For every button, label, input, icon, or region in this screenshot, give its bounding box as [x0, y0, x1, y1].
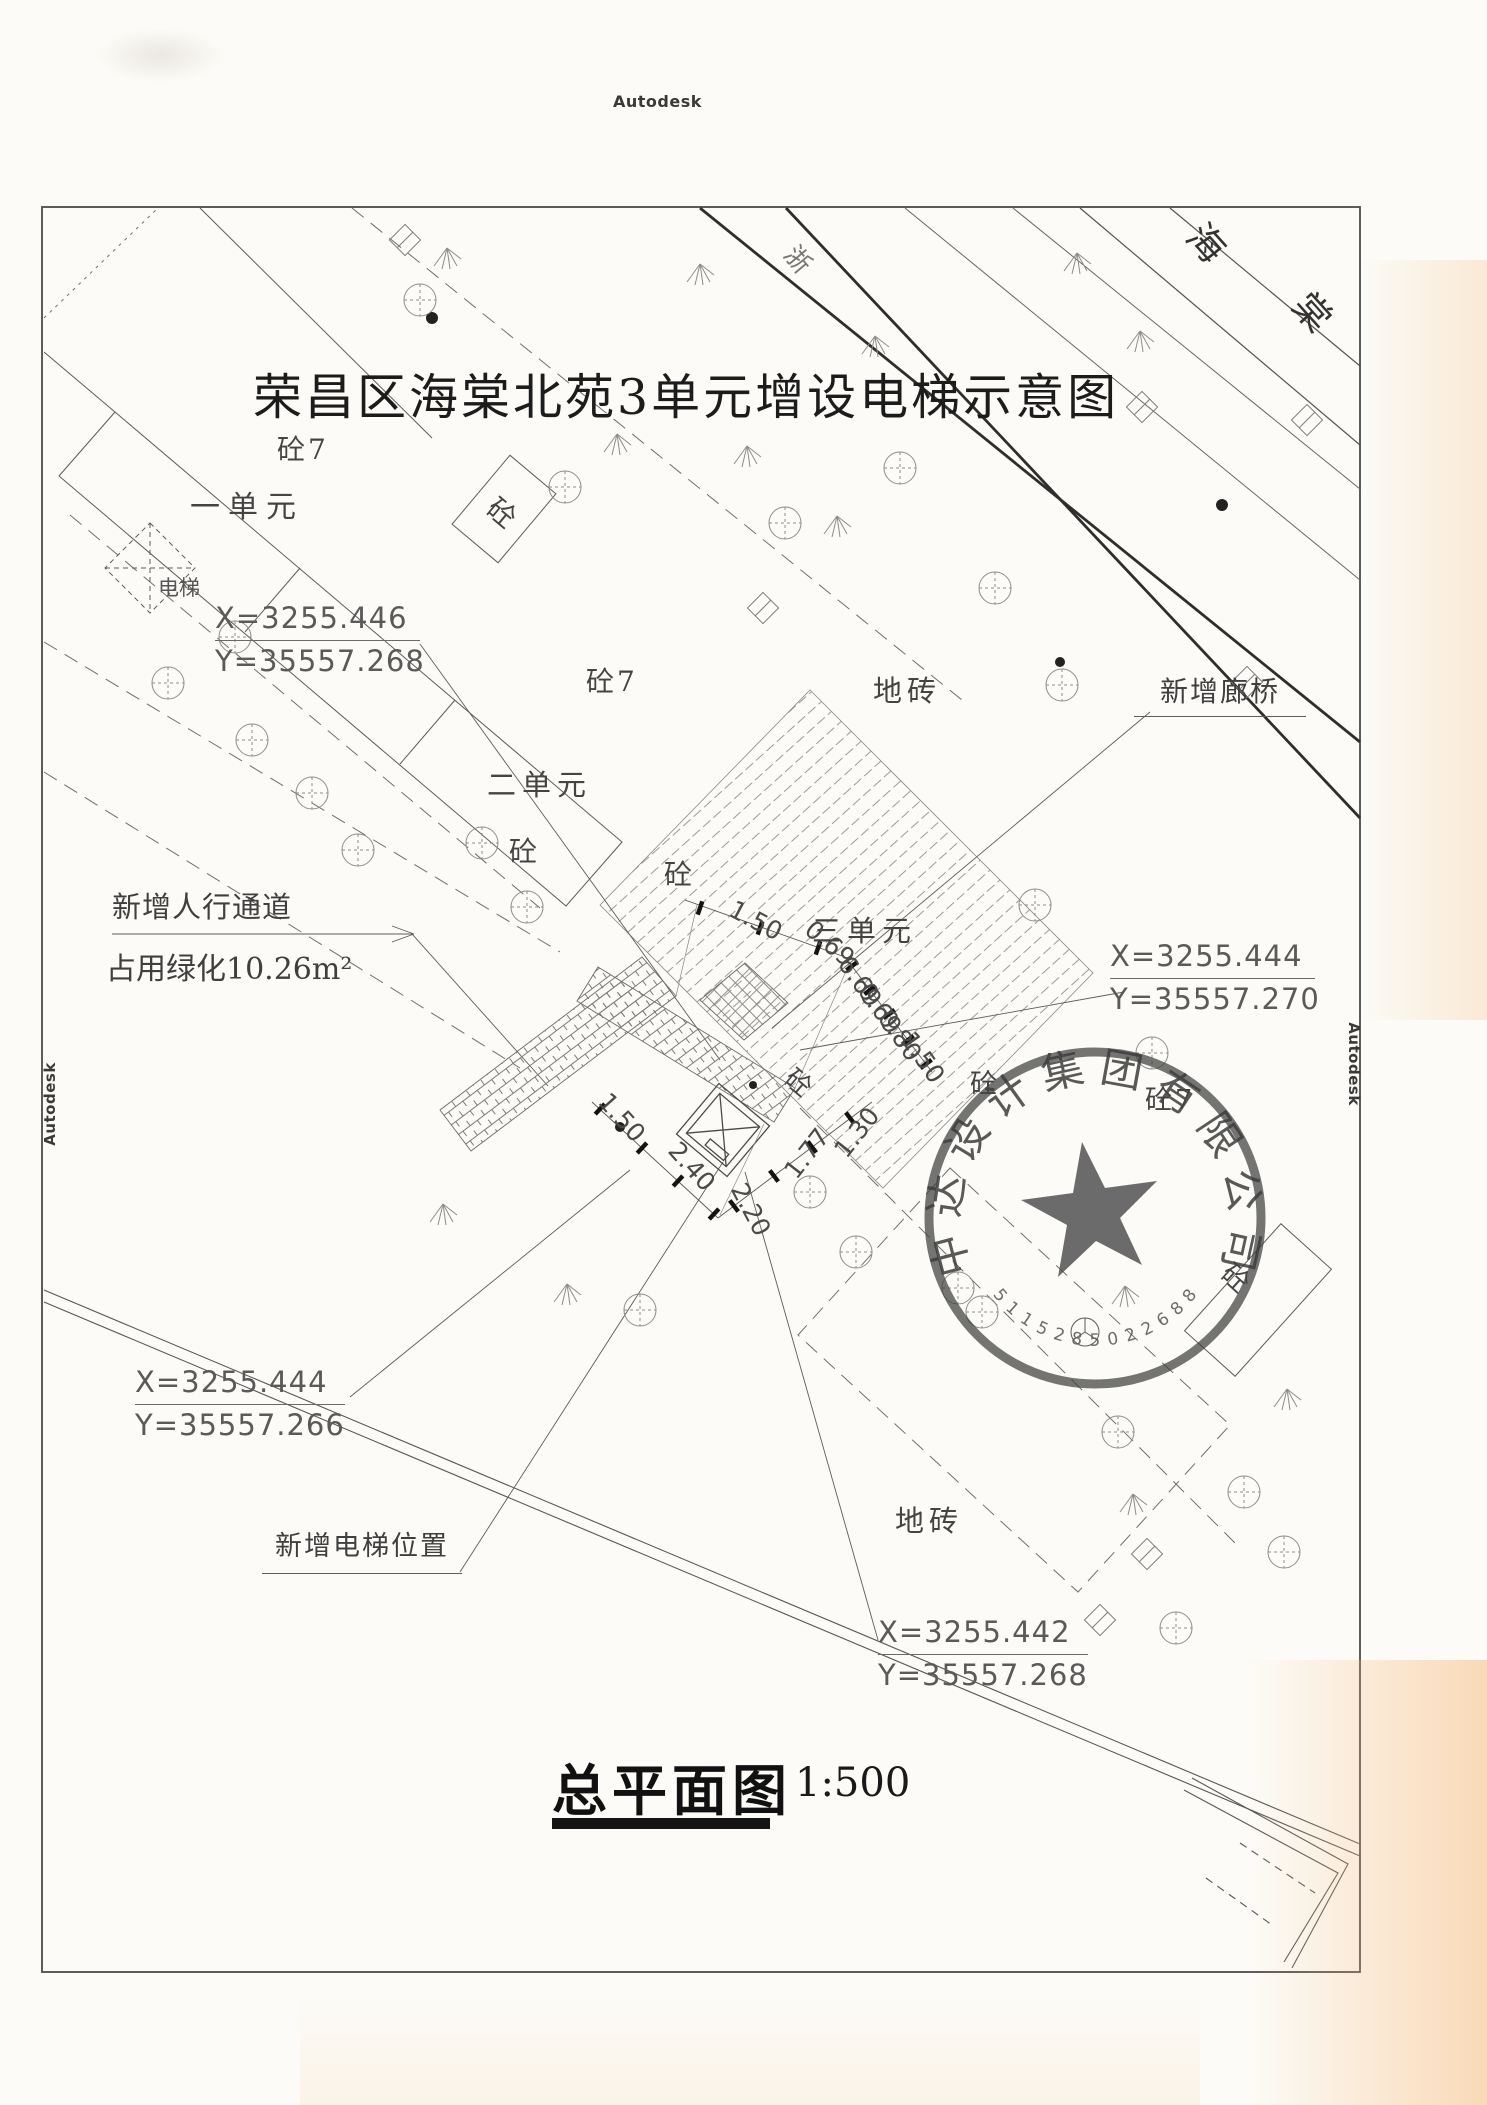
green-area-callout: 占用绿化10.26m²: [106, 944, 352, 988]
existing-elevator-label: 电梯: [158, 572, 200, 602]
coordinate-callout-east: X=3255.444 Y=35557.270: [1110, 936, 1315, 1019]
plan-sheet-title: 总平面图: [552, 1746, 792, 1826]
coordinate-callout-sw: X=3255.444 Y=35557.266: [135, 1362, 345, 1445]
new-corridor-callout: 新增廊桥: [1134, 670, 1306, 717]
coordinate-y-value: Y=35557.270: [1110, 979, 1315, 1019]
coordinate-x-value: X=3255.446: [215, 598, 420, 641]
coordinate-y-value: Y=35557.268: [215, 641, 420, 681]
autodesk-watermark-right: Autodesk: [1345, 1022, 1363, 1106]
drawing-title: 荣昌区海棠北苑3单元增设电梯示意图: [253, 358, 1119, 429]
coordinate-callout-se: X=3255.442 Y=35557.268: [878, 1612, 1088, 1695]
concrete-label: 砼: [664, 853, 695, 893]
scanned-site-plan-page: 中达设计集团有限公司 5115285022688 Autodesk Autode…: [0, 0, 1487, 2105]
coordinate-callout-nw: X=3255.446 Y=35557.268: [215, 598, 420, 681]
floor-tile-label: 地砖: [873, 668, 941, 710]
new-elevator-callout: 新增电梯位置: [262, 1524, 462, 1574]
unit1-label: 一单元: [190, 482, 304, 526]
plan-scale: 1:500: [795, 1760, 910, 1806]
coordinate-x-value: X=3255.444: [135, 1362, 345, 1405]
autodesk-watermark-left: Autodesk: [41, 1062, 59, 1146]
concrete7-label: 砼7: [1145, 1078, 1195, 1117]
concrete7-label: 砼7: [586, 660, 638, 700]
coordinate-x-value: X=3255.444: [1110, 936, 1315, 979]
stamp-star-icon: [1021, 1142, 1157, 1277]
coordinate-y-value: Y=35557.268: [878, 1655, 1088, 1695]
unit2-label: 二单元: [487, 762, 592, 804]
concrete-label: 砼: [509, 830, 540, 870]
coordinate-x-value: X=3255.442: [878, 1612, 1088, 1655]
coordinate-y-value: Y=35557.266: [135, 1405, 345, 1445]
concrete7-label: 砼7: [277, 428, 329, 468]
autodesk-watermark-top: Autodesk: [613, 92, 702, 111]
floor-tile-label: 地砖: [895, 1498, 963, 1540]
new-walkway-callout: 新增人行通道: [112, 884, 292, 926]
title-underline-bar: [552, 1818, 770, 1829]
concrete-label: 砼: [970, 1062, 1000, 1101]
